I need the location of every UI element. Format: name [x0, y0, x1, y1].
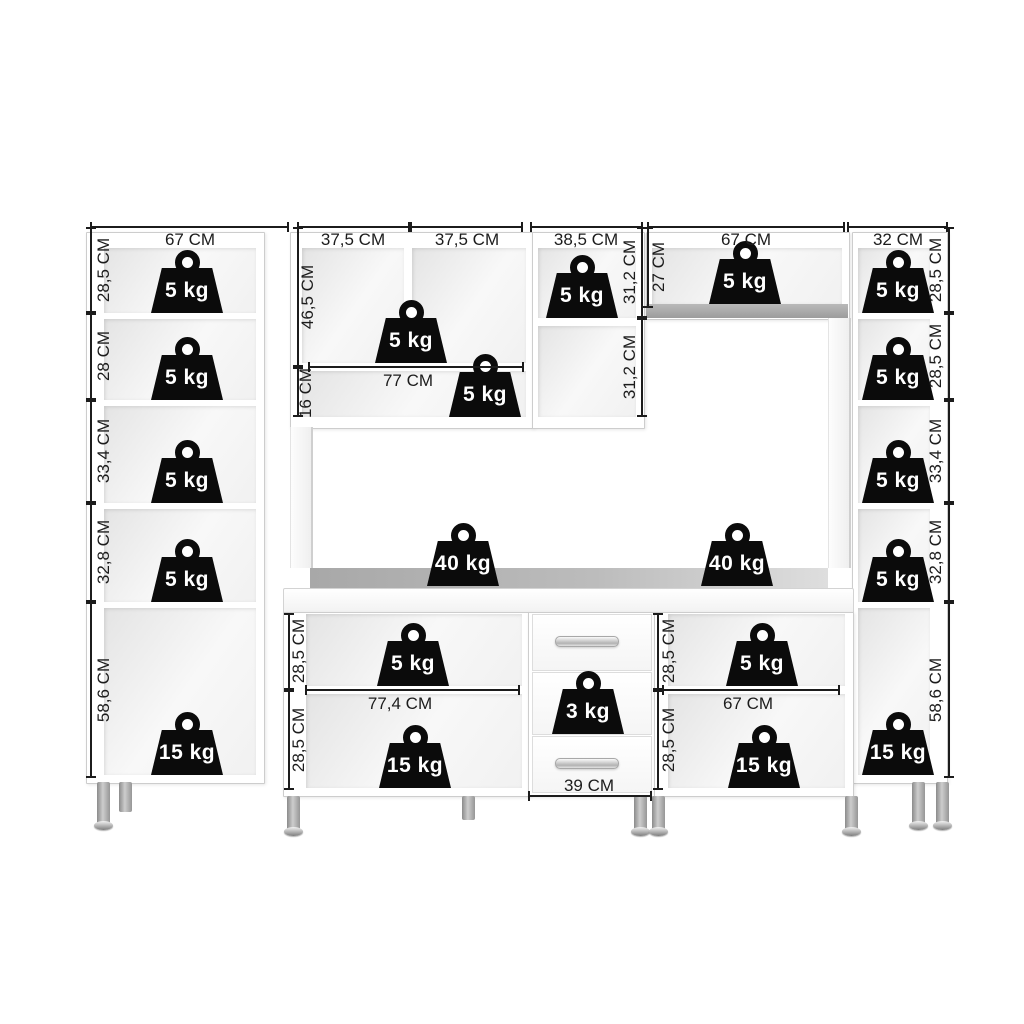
weight-capacity-label: 5 kg [375, 318, 447, 363]
dimension-label: 77 CM [383, 371, 433, 391]
weight-icon: 5 kg [862, 250, 934, 313]
cabinet-leg [912, 782, 925, 824]
dimension-line [948, 400, 950, 503]
dimension-line [641, 227, 643, 318]
cabinet-leg [845, 796, 858, 830]
weight-capacity-label: 5 kg [151, 458, 223, 503]
weight-capacity-label: 5 kg [449, 372, 521, 417]
weight-icon: 5 kg [151, 440, 223, 503]
dimension-line [305, 689, 520, 691]
dimension-line [948, 602, 950, 778]
dimension-label: 58,6 CM [926, 658, 946, 722]
weight-capacity-label: 5 kg [726, 641, 798, 686]
weight-capacity-label: 5 kg [546, 273, 618, 318]
dimension-label: 16 CM [296, 368, 316, 418]
dimension-line [948, 227, 950, 313]
weight-capacity-label: 15 kg [728, 743, 800, 788]
dimension-label: 39 CM [564, 776, 614, 796]
cabinet-leg [936, 782, 949, 824]
drawer-handle-bottom [555, 758, 619, 769]
drawer-handle-top [555, 636, 619, 647]
weight-icon: 5 kg [709, 241, 781, 304]
weight-capacity-label: 5 kg [151, 268, 223, 313]
dimension-line [90, 503, 92, 602]
weight-capacity-label: 5 kg [862, 355, 934, 400]
weight-capacity-label: 5 kg [862, 268, 934, 313]
cabinet-leg [634, 796, 647, 830]
weight-capacity-label: 5 kg [151, 355, 223, 400]
dimension-label: 32,8 CM [926, 520, 946, 584]
dimension-line [530, 226, 643, 228]
weight-icon: 5 kg [862, 337, 934, 400]
weight-icon: 5 kg [151, 250, 223, 313]
dimension-line [948, 503, 950, 602]
kitchen-dimensions-diagram: 5 kg 5 kg 5 kg 5 kg 15 kg 5 kg 5 kg 5 kg… [0, 0, 1024, 1024]
dimension-line [948, 313, 950, 400]
dimension-line [641, 318, 643, 417]
dimension-label: 77,4 CM [368, 694, 432, 714]
weight-icon: 5 kg [377, 623, 449, 686]
dimension-line [297, 226, 410, 228]
weight-icon: 5 kg [449, 354, 521, 417]
dimension-line [308, 366, 524, 368]
dimension-label: 58,6 CM [94, 658, 114, 722]
hutch-left-side-panel [290, 427, 313, 568]
dimension-label: 28,5 CM [289, 619, 309, 683]
weight-icon: 3 kg [552, 671, 624, 734]
dimension-label: 33,4 CM [94, 419, 114, 483]
dimension-label: 28,5 CM [926, 324, 946, 388]
weight-icon: 15 kg [728, 725, 800, 788]
dimension-label: 28,5 CM [289, 708, 309, 772]
dimension-label: 27 CM [649, 242, 669, 292]
weight-icon: 5 kg [862, 440, 934, 503]
weight-icon: 40 kg [701, 523, 773, 586]
weight-icon: 5 kg [726, 623, 798, 686]
countertop-edge [283, 588, 854, 614]
dimension-label: 32 CM [873, 230, 923, 250]
weight-icon: 15 kg [151, 712, 223, 775]
dimension-line [90, 226, 289, 228]
dimension-label: 37,5 CM [321, 230, 385, 250]
weight-capacity-label: 15 kg [379, 743, 451, 788]
dimension-label: 28,5 CM [926, 238, 946, 302]
dimension-label: 28,5 CM [659, 619, 679, 683]
cabinet-leg [287, 796, 300, 830]
cabinet-leg [652, 796, 665, 830]
weight-icon: 15 kg [862, 712, 934, 775]
weight-capacity-label: 40 kg [427, 541, 499, 586]
weight-capacity-label: 5 kg [377, 641, 449, 686]
dimension-label: 32,8 CM [94, 520, 114, 584]
weight-capacity-label: 40 kg [701, 541, 773, 586]
dimension-line [647, 226, 845, 228]
dimension-line [90, 227, 92, 313]
dimension-label: 31,2 CM [620, 240, 640, 304]
weight-icon: 5 kg [862, 539, 934, 602]
weight-icon: 40 kg [427, 523, 499, 586]
dimension-label: 28 CM [94, 331, 114, 381]
top-shelf-board [646, 304, 848, 318]
dimension-line [410, 226, 523, 228]
weight-capacity-label: 5 kg [151, 557, 223, 602]
dimension-label: 37,5 CM [435, 230, 499, 250]
cabinet-leg [119, 782, 132, 812]
cabinet-leg [97, 782, 110, 824]
weight-icon: 5 kg [375, 300, 447, 363]
weight-capacity-label: 15 kg [862, 730, 934, 775]
dimension-label: 33,4 CM [926, 419, 946, 483]
dimension-label: 28,5 CM [659, 708, 679, 772]
dimension-label: 28,5 CM [94, 238, 114, 302]
weight-icon: 5 kg [151, 337, 223, 400]
weight-icon: 5 kg [546, 255, 618, 318]
dimension-line [90, 400, 92, 503]
weight-icon: 5 kg [151, 539, 223, 602]
dimension-label: 67 CM [723, 694, 773, 714]
dimension-line [90, 313, 92, 400]
dimension-label: 46,5 CM [298, 265, 318, 329]
dimension-line [90, 602, 92, 778]
hutch-right-side-panel [828, 318, 851, 568]
dimension-line [662, 689, 840, 691]
weight-capacity-label: 5 kg [709, 259, 781, 304]
weight-capacity-label: 15 kg [151, 730, 223, 775]
cabinet-leg [462, 796, 475, 820]
weight-capacity-label: 3 kg [552, 689, 624, 734]
dimension-label: 38,5 CM [554, 230, 618, 250]
dimension-line [847, 226, 948, 228]
dimension-label: 67 CM [165, 230, 215, 250]
dimension-label: 31,2 CM [620, 335, 640, 399]
weight-capacity-label: 5 kg [862, 557, 934, 602]
dimension-label: 67 CM [721, 230, 771, 250]
weight-icon: 15 kg [379, 725, 451, 788]
weight-capacity-label: 5 kg [862, 458, 934, 503]
